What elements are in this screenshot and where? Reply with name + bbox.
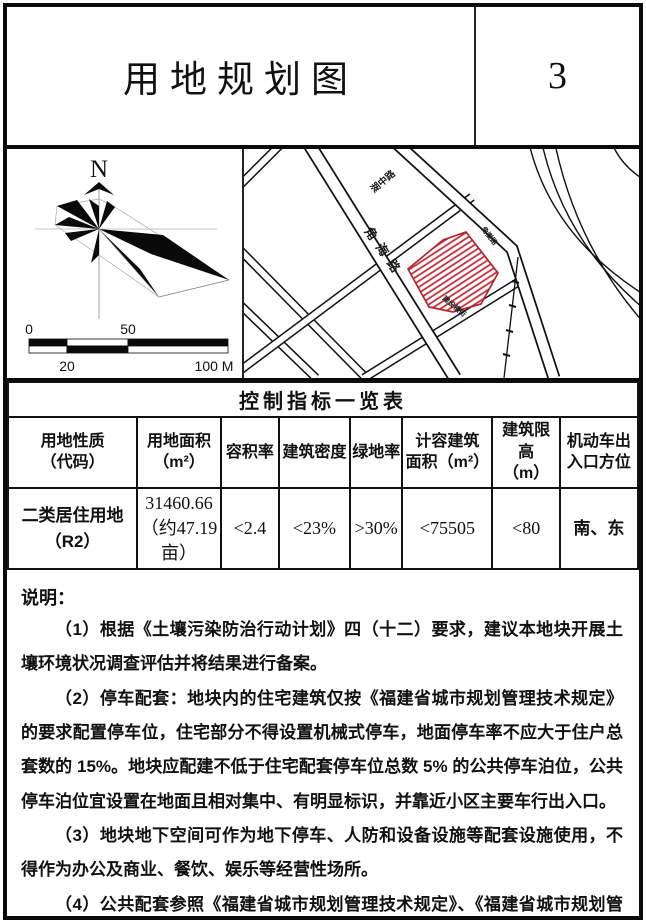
location-map: 湖中路 角海路 角嵩路 建设横街 <box>244 149 639 378</box>
cell-height: <80 <box>492 488 559 570</box>
table-header-row: 用地性质 （代码） 用地面积 （m²） 容积率 建筑密度 绿地率 计容建筑 面积… <box>8 417 638 488</box>
sheet-header: 用地规划图 3 <box>7 7 639 149</box>
scale-tick-0: 0 <box>25 321 33 337</box>
col-header-entrance: 机动车出 入口方位 <box>560 417 638 488</box>
cell-green: >30% <box>350 488 402 570</box>
col-header-land-area: 用地面积 （m²） <box>137 417 221 488</box>
scale-tick-50: 50 <box>120 321 136 337</box>
note-item-3: （3）地块地下空间可作为地下停车、人防和设备设施等配套设施使用，不得作为办公及商… <box>21 819 623 888</box>
cell-entrance: 南、东 <box>560 488 638 570</box>
table-row: 二类居住用地 （R2） 31460.66 （约47.19亩） <2.4 <23%… <box>8 488 638 570</box>
map-band: N 0 50 <box>7 149 639 381</box>
cell-land-area: 31460.66 （约47.19亩） <box>137 488 221 570</box>
page-title: 用地规划图 <box>123 49 358 103</box>
col-header-height: 建筑限高 （m） <box>492 417 559 488</box>
col-header-green: 绿地率 <box>350 417 402 488</box>
notes-section: 说明： （1）根据《土壤污染防治行动计划》四（十二）要求，建议本地块开展土壤环境… <box>7 570 639 916</box>
expressway-arc <box>610 149 639 179</box>
location-map-svg: 湖中路 角海路 角嵩路 建设横街 <box>244 149 639 378</box>
note-item-2: （2）停车配套：地块内的住宅建筑仅按《福建省城市规划管理技术规定》的要求配置停车… <box>21 682 623 819</box>
note-item-1: （1）根据《土壤污染防治行动计划》四（十二）要求，建议本地块开展土壤环境状况调查… <box>21 613 623 682</box>
compass-rose-icon: N 0 50 <box>7 149 240 378</box>
sheet-title-cell: 用地规划图 <box>7 7 476 145</box>
planning-sheet: 用地规划图 3 N <box>3 3 643 920</box>
expressway-arc <box>541 149 639 308</box>
note-item-4: （4）公共配套参照《福建省城市规划管理技术规定》、《福建省城市规划管理技术规定-… <box>21 888 623 916</box>
road-line <box>244 149 286 191</box>
scale-tick-100: 100 M <box>195 358 234 374</box>
compass-panel: N 0 50 <box>7 149 244 378</box>
col-header-gfa: 计容建筑 面积（m²） <box>402 417 492 488</box>
col-header-land-use: 用地性质 （代码） <box>8 417 137 488</box>
table-title: 控制指标一览表 <box>8 382 638 417</box>
cell-density: <23% <box>279 488 350 570</box>
scale-tick-20: 20 <box>59 358 75 374</box>
expressway-arc <box>554 149 639 322</box>
cell-gfa: <75505 <box>402 488 492 570</box>
north-label: N <box>90 156 108 183</box>
sheet-number-cell: 3 <box>476 7 639 145</box>
road-label-huzhong: 湖中路 <box>368 167 398 195</box>
col-header-density: 建筑密度 <box>279 417 350 488</box>
cell-land-use: 二类居住用地 （R2） <box>8 488 137 570</box>
control-indicator-table: 控制指标一览表 用地性质 （代码） 用地面积 （m²） 容积率 建筑密度 绿地率… <box>7 381 639 570</box>
col-header-far: 容积率 <box>221 417 279 488</box>
notes-label: 说明： <box>21 584 623 613</box>
scale-bar: 0 50 20 100 M <box>25 321 233 374</box>
cell-far: <2.4 <box>221 488 279 570</box>
expressway-arc <box>528 149 639 294</box>
